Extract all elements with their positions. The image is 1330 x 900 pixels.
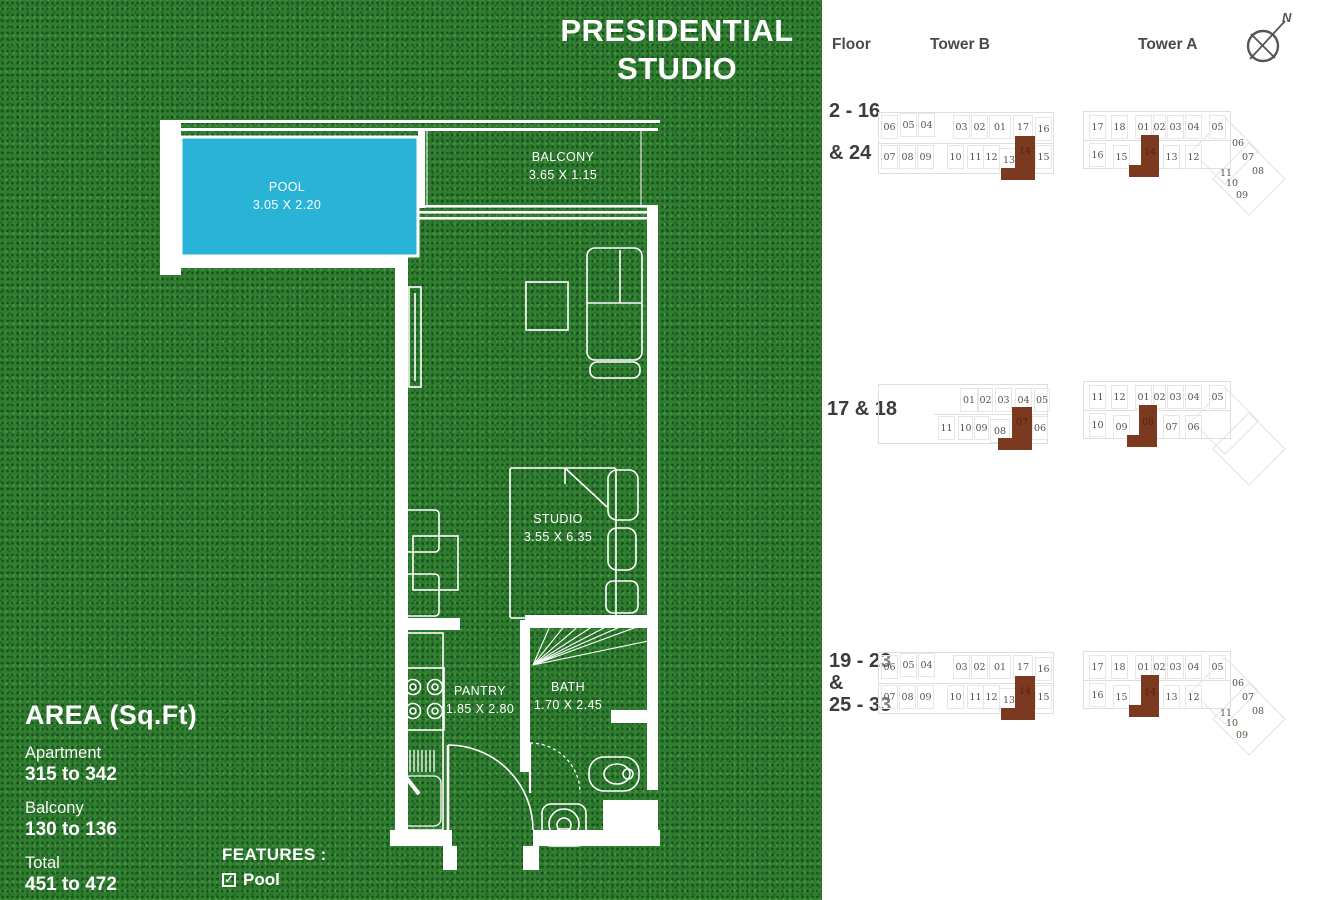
- keyplan-unit-01: 01: [960, 388, 978, 412]
- keyplan-unit-03: 03: [1167, 385, 1184, 409]
- keyplan-unit-03: 03: [1167, 655, 1184, 679]
- keyplan-unit-13: 13: [1163, 685, 1180, 709]
- title-line2: STUDIO: [545, 50, 809, 88]
- dining-set: [405, 510, 458, 616]
- keyplan-unit-15: 15: [1113, 145, 1130, 169]
- coffee-table: [526, 282, 568, 330]
- keyplan-unit-08: 08: [1251, 165, 1265, 177]
- compass-north-icon: N: [1236, 8, 1300, 72]
- features-heading: FEATURES :: [222, 845, 327, 865]
- highlighted-unit-shape: [1001, 708, 1015, 720]
- keyplan-unit-07: 07: [1241, 151, 1255, 163]
- keyplan-unit-03: 03: [953, 115, 970, 139]
- keyplan-unit-12: 12: [1185, 685, 1202, 709]
- highlighted-unit-number: 07: [1012, 413, 1032, 431]
- keyplan-unit-10: 10: [947, 145, 964, 169]
- keyplan-unit-04: 04: [1185, 655, 1202, 679]
- balcony-room-label: BALCONY 3.65 X 1.15: [505, 148, 621, 184]
- highlighted-unit-shape: [1129, 165, 1141, 177]
- keyplan-unit-01: 01: [989, 115, 1011, 139]
- keyplan-unit-05: 05: [900, 113, 917, 137]
- title-line1: PRESIDENTIAL: [545, 12, 809, 50]
- keyplan-unit-06: 06: [1231, 677, 1245, 689]
- toilet: [589, 757, 639, 791]
- sofa: [587, 248, 642, 378]
- highlighted-unit-shape: [998, 438, 1012, 450]
- keyplan-unit-04: 04: [1185, 385, 1202, 409]
- keyplan-unit-05: 05: [1209, 655, 1226, 679]
- keyplan-unit-06: 06: [881, 655, 898, 679]
- tower-b-keyplan-floors-19-23-25-33: 0605040302011716070809101112131514: [878, 648, 1058, 738]
- keyplan-unit-11: 11: [938, 416, 955, 440]
- keyplan-unit-05: 05: [1209, 385, 1226, 409]
- keyplan-unit-10: 10: [958, 416, 973, 440]
- highlighted-unit-number: 08: [1139, 413, 1157, 431]
- keyplan-unit-15: 15: [1035, 145, 1052, 169]
- keyplan-unit-10: 10: [1225, 717, 1239, 729]
- keyplan-unit-17: 17: [1089, 115, 1106, 139]
- area-heading: AREA (Sq.Ft): [25, 700, 197, 731]
- keyplan-unit-12: 12: [983, 685, 1000, 709]
- keyplan-unit-05: 05: [1034, 388, 1050, 412]
- highlighted-unit-number: 14: [1141, 143, 1159, 161]
- keyplan-unit-09: 09: [1235, 189, 1249, 201]
- tower-a-keyplan-floors-2-16-24: 171801020304051615131206070811100914: [1083, 105, 1279, 245]
- keyplan-unit-09: 09: [917, 145, 934, 169]
- keyplan-unit-16: 16: [1035, 117, 1052, 141]
- keyplan-unit-10: 10: [1225, 177, 1239, 189]
- area-summary: AREA (Sq.Ft) Apartment 315 to 342 Balcon…: [25, 700, 197, 896]
- page-title: PRESIDENTIAL STUDIO: [545, 12, 809, 88]
- studio-room-label: STUDIO 3.55 X 6.35: [500, 510, 616, 546]
- area-item-total: Total 451 to 472: [25, 854, 197, 896]
- features: FEATURES : ✓ Pool: [222, 845, 327, 890]
- kitchen-sink: [403, 750, 441, 826]
- highlighted-unit-number: 14: [1015, 142, 1035, 160]
- keyplan-unit-05: 05: [900, 653, 917, 677]
- keyplan-unit-09: 09: [917, 685, 934, 709]
- bath-room-label: BATH 1.70 X 2.45: [512, 678, 624, 714]
- keyplan-unit-12: 12: [1111, 385, 1128, 409]
- keyplan-unit-03: 03: [1167, 115, 1184, 139]
- highlighted-unit-number: 14: [1141, 683, 1159, 701]
- keyplan-unit-04: 04: [918, 113, 935, 137]
- keyplan-unit-15: 15: [1113, 685, 1130, 709]
- floor-column-header: Floor: [832, 36, 871, 54]
- keyplan-unit-06: 06: [1032, 416, 1048, 440]
- highlighted-unit-shape: [1001, 168, 1015, 180]
- highlighted-unit-number: 14: [1015, 682, 1035, 700]
- tower-a-keyplan-floors-19-23-25-33: 171801020304051615131206070811100914: [1083, 645, 1279, 785]
- keyplan-unit-12: 12: [983, 145, 1000, 169]
- floorplan-section: PRESIDENTIAL STUDIO: [0, 0, 822, 900]
- tower-b-keyplan-floors-2-16-24: 0605040302011716070809101112131514: [878, 108, 1058, 198]
- keyplan-unit-08: 08: [899, 685, 916, 709]
- keyplan-unit-07: 07: [1241, 691, 1255, 703]
- floor-plan-drawing: [155, 112, 670, 882]
- floor-range-label: 2 - 16& 24: [829, 100, 880, 184]
- keyplan-unit-09: 09: [1235, 729, 1249, 741]
- keyplan-unit-12: 12: [1185, 145, 1202, 169]
- keyplan-unit-05: 05: [1209, 115, 1226, 139]
- tower-b-column-header: Tower B: [930, 36, 990, 54]
- keyplan-unit-10: 10: [1089, 413, 1106, 437]
- tower-b-keyplan-floors-17-18: 0102030405111009080607: [878, 380, 1058, 470]
- keyplan-unit-07: 07: [881, 145, 898, 169]
- screenshot-root: PRESIDENTIAL STUDIO: [0, 0, 1330, 900]
- key-plan-panel: Floor Tower B Tower A N 2 - 16& 24060504…: [822, 0, 1330, 900]
- keyplan-unit-10: 10: [947, 685, 964, 709]
- keyplan-unit-13: 13: [1163, 145, 1180, 169]
- keyplan-unit-03: 03: [953, 655, 970, 679]
- keyplan-unit-08: 08: [1251, 705, 1265, 717]
- highlighted-unit-shape: [1127, 435, 1139, 447]
- tv-console: [409, 287, 421, 387]
- keyplan-unit-03: 03: [995, 388, 1012, 412]
- keyplan-unit-04: 04: [918, 653, 935, 677]
- keyplan-unit-07: 07: [881, 685, 898, 709]
- keyplan-unit-18: 18: [1111, 655, 1128, 679]
- keyplan-unit-15: 15: [1035, 685, 1052, 709]
- keyplan-unit-11: 11: [967, 145, 984, 169]
- keyplan-unit-17: 17: [1089, 655, 1106, 679]
- keyplan-unit-06: 06: [881, 115, 898, 139]
- area-item-apartment: Apartment 315 to 342: [25, 744, 197, 786]
- keyplan-unit-16: 16: [1035, 657, 1052, 681]
- checked-checkbox-icon: ✓: [222, 873, 236, 887]
- keyplan-unit-02: 02: [971, 115, 988, 139]
- keyplan-unit-18: 18: [1111, 115, 1128, 139]
- feature-pool-label: Pool: [243, 870, 280, 890]
- compass-n-label: N: [1282, 10, 1292, 25]
- keyplan-unit-09: 09: [974, 416, 989, 440]
- highlighted-unit-shape: [1129, 705, 1141, 717]
- tower-a-column-header: Tower A: [1138, 36, 1197, 54]
- keyplan-unit-07: 07: [1163, 415, 1180, 439]
- area-item-balcony: Balcony 130 to 136: [25, 799, 197, 841]
- feature-pool: ✓ Pool: [222, 870, 327, 890]
- keyplan-unit-11: 11: [1089, 385, 1106, 409]
- keyplan-unit-16: 16: [1089, 683, 1106, 707]
- keyplan-unit-16: 16: [1089, 143, 1106, 167]
- keyplan-unit-06: 06: [1185, 415, 1202, 439]
- keyplan-unit-06: 06: [1231, 137, 1245, 149]
- keyplan-unit-11: 11: [967, 685, 984, 709]
- keyplan-unit-08: 08: [899, 145, 916, 169]
- pool-room-label: POOL 3.05 X 2.20: [232, 178, 342, 214]
- bath-door: [530, 743, 580, 793]
- keyplan-unit-04: 04: [1185, 115, 1202, 139]
- tower-a-keyplan-floors-17-18: 111201020304051009070608: [1083, 375, 1279, 515]
- keyplan-unit-02: 02: [971, 655, 988, 679]
- keyplan-unit-02: 02: [978, 388, 993, 412]
- keyplan-unit-01: 01: [989, 655, 1011, 679]
